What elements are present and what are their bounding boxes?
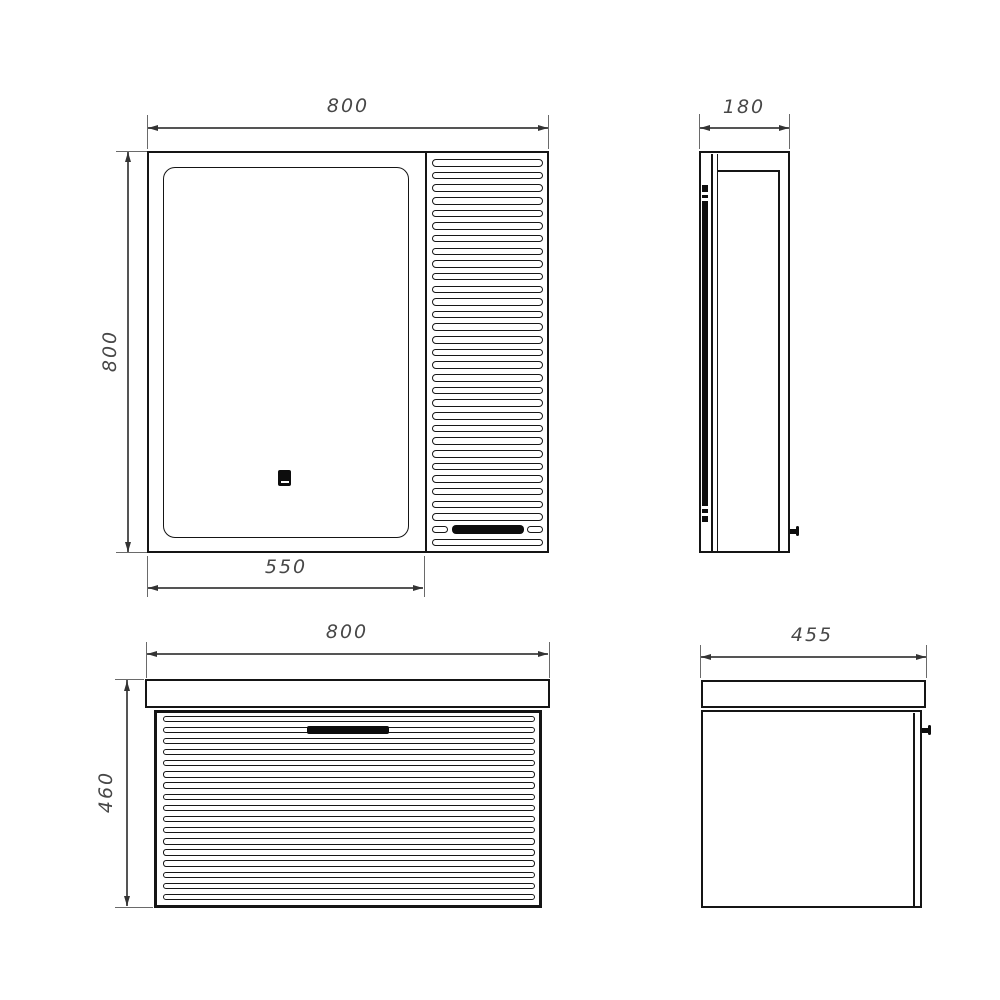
extension-line xyxy=(699,114,700,149)
dimension-line xyxy=(148,127,548,128)
dimension-line xyxy=(126,680,127,906)
drawer-slat xyxy=(163,872,535,878)
dimension-arrow xyxy=(148,585,158,591)
dimension-line xyxy=(700,127,789,128)
louver-slat xyxy=(432,184,543,192)
mirror-edge-bar xyxy=(702,185,708,522)
vanity-countertop xyxy=(145,679,550,708)
dimension-arrow xyxy=(147,651,157,657)
dimension-arrow xyxy=(538,651,548,657)
back-panel-line xyxy=(778,170,780,551)
louver-slat xyxy=(432,311,543,319)
dimension-label-vanity-height: 460 xyxy=(95,771,117,813)
door-knob-icon xyxy=(790,529,796,534)
dimension-arrow xyxy=(125,152,131,162)
door-carcass-gap-line xyxy=(717,154,719,551)
extension-line xyxy=(146,642,147,678)
louver-slat xyxy=(432,235,543,243)
louver-slat xyxy=(432,488,543,496)
louver-slat xyxy=(432,475,543,483)
extension-line xyxy=(926,645,927,678)
dimension-arrow xyxy=(124,896,130,906)
louver-slat xyxy=(432,399,543,407)
hinge-notch xyxy=(702,506,708,509)
extension-line xyxy=(116,552,147,553)
louver-slat xyxy=(432,539,543,547)
louver-slat xyxy=(432,286,543,294)
drawer-slat xyxy=(163,760,535,766)
touch-sensor-icon xyxy=(278,470,291,486)
dimension-arrow xyxy=(916,654,926,660)
extension-line xyxy=(116,151,147,152)
dimension-line xyxy=(127,152,128,552)
hinge-notch xyxy=(702,192,708,195)
door-knob-icon xyxy=(922,728,928,733)
louver-slat-stub xyxy=(527,526,543,534)
drawer-slat xyxy=(163,883,535,889)
dimension-label-cabinet-height: 800 xyxy=(99,330,121,372)
extension-line xyxy=(789,114,790,149)
dimension-label-vanity-depth: 455 xyxy=(791,624,833,646)
extension-line xyxy=(700,645,701,678)
dimension-arrow xyxy=(125,542,131,552)
dimension-line xyxy=(701,656,926,657)
hinge-notch xyxy=(702,513,708,516)
cabinet-side-outline xyxy=(699,151,790,553)
drawer-slat xyxy=(163,782,535,788)
drawer-slat xyxy=(163,827,535,833)
dimension-arrow xyxy=(124,681,130,691)
louver-slat xyxy=(432,260,543,268)
dimension-arrow xyxy=(700,125,710,131)
drawer-slat xyxy=(163,860,535,866)
louver-slat xyxy=(432,513,543,521)
extension-line xyxy=(147,115,148,149)
louver-slat xyxy=(432,450,543,458)
louver-slat xyxy=(432,387,543,395)
louver-slat xyxy=(432,425,543,433)
door-knob-icon xyxy=(928,725,931,735)
door-carcass-gap-line xyxy=(711,154,713,551)
drawer-slat xyxy=(163,716,535,722)
drawer-front-line xyxy=(913,713,915,906)
drawer-slat xyxy=(163,849,535,855)
vanity-countertop-side xyxy=(701,680,926,708)
extension-line xyxy=(548,115,549,149)
louver-slat xyxy=(432,501,543,509)
extension-line xyxy=(424,556,425,597)
louver-slat xyxy=(432,222,543,230)
louver-slat xyxy=(432,361,543,369)
louver-slat xyxy=(432,159,543,167)
louver-slat xyxy=(432,336,543,344)
dimension-label-cabinet-width: 800 xyxy=(327,95,369,117)
drawer-slat xyxy=(163,894,535,900)
dimension-line xyxy=(147,653,548,654)
louver-slat-stub xyxy=(432,526,448,534)
dimension-line xyxy=(148,587,423,588)
drawer-slat xyxy=(163,794,535,800)
dimension-arrow xyxy=(779,125,789,131)
dimension-label-cabinet-depth: 180 xyxy=(723,96,765,118)
vanity-body-side xyxy=(701,710,922,908)
louver-slat xyxy=(432,210,543,218)
dimension-label-door-width: 550 xyxy=(265,556,307,578)
louver-slat xyxy=(432,273,543,281)
louver-slat xyxy=(432,197,543,205)
handle-bar-icon xyxy=(307,726,389,734)
dimension-label-vanity-width: 800 xyxy=(326,621,368,643)
louver-slat xyxy=(432,172,543,180)
louver-slat xyxy=(432,463,543,471)
drawer-slat xyxy=(163,816,535,822)
dimension-arrow xyxy=(148,125,158,131)
extension-line xyxy=(115,907,153,908)
door-knob-icon xyxy=(796,526,799,536)
louver-slat xyxy=(432,248,543,256)
louver-slat xyxy=(432,412,543,420)
technical-drawing-canvas: 800 800 550 180 800 460 xyxy=(0,0,1000,1000)
drawer-slat xyxy=(163,738,535,744)
hinge-notch xyxy=(702,198,708,201)
drawer-slat xyxy=(163,771,535,777)
louver-slat xyxy=(432,374,543,382)
louver-slat xyxy=(432,298,543,306)
dimension-arrow xyxy=(538,125,548,131)
louver-slat xyxy=(432,437,543,445)
louver-slat xyxy=(432,349,543,357)
touch-sensor-slot xyxy=(281,481,289,483)
drawer-slat xyxy=(163,749,535,755)
drawer-slat xyxy=(163,805,535,811)
dimension-arrow xyxy=(413,585,423,591)
dimension-arrow xyxy=(701,654,711,660)
extension-line xyxy=(549,642,550,678)
drawer-slat xyxy=(163,838,535,844)
extension-line xyxy=(147,556,148,597)
carcass-top-line xyxy=(718,170,778,172)
extension-line xyxy=(115,679,144,680)
louver-slat xyxy=(432,323,543,331)
handle-bar-icon xyxy=(452,525,524,533)
